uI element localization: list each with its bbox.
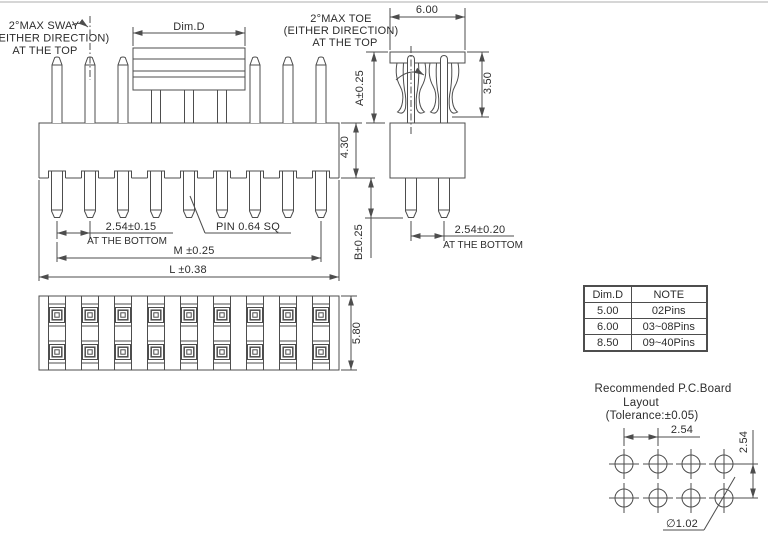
pcb-pitch-x-label: 2.54 [671,424,693,436]
pin-cell [115,296,132,370]
pcb-hole [643,449,673,479]
pcb-hole [709,483,739,513]
pcb-pitch-x-dimension: 2.54 [624,424,700,446]
front-view: 2°MAX SWAY (EITHER DIRECTION) AT THE TOP… [0,16,375,281]
pcb-title-line3: (Tolerance:±0.05) [606,410,699,422]
pin [280,171,297,218]
pin-cell [181,296,198,370]
note-value: 02Pins [631,303,707,319]
side-pitch-label: 2.54±0.20 [455,224,506,236]
pin-cell [49,296,66,370]
cap-width-label: Dim.D [173,21,205,33]
side-pitch-note: AT THE BOTTOM [443,240,523,251]
top-pin-label: A±0.25 [354,70,366,106]
dim-value: 8.50 [584,335,631,352]
dim-table-header-dim: Dim.D [584,286,631,303]
pcb-hole-dia-label: ∅1.02 [666,518,698,530]
pickup-cap [133,48,245,123]
clip-height-label: 3.50 [482,72,494,94]
front-pitch-note: AT THE BOTTOM [87,236,167,247]
front-housing-body [39,123,339,178]
pin-size-callout: PIN 0.64 SQ [190,196,291,233]
side-housing-body [390,123,465,178]
dim-value: 5.00 [584,303,631,319]
pin [406,178,417,218]
pin [283,57,293,123]
pin [82,171,99,218]
dim-table-header-note: NOTE [631,286,707,303]
pin-cell [280,296,297,370]
note-value: 09~40Pins [631,335,707,352]
toe-note-line3: AT THE TOP [312,37,377,49]
pin-cell [82,296,99,370]
sway-note-line3: AT THE TOP [12,45,77,57]
pin [115,171,132,218]
pcb-title-line2: Layout [623,397,659,409]
pin [313,171,330,218]
cap-depth-label: 6.00 [416,4,438,16]
dim-table-header-row: Dim.D NOTE [584,286,707,303]
sway-note-line1: 2°MAX SWAY [9,20,80,32]
front-pitch-label: 2.54±0.15 [106,221,157,233]
pcb-hole [676,449,706,479]
bottom-pin-label: B±0.25 [353,224,365,260]
body-height-label: 4.30 [339,136,351,158]
pcb-hole [676,483,706,513]
pcb-title-line1: Recommended P.C.Board [595,383,732,395]
cap-width-dimension: Dim.D [133,21,245,46]
pcb-pitch-y-label: 2.54 [738,431,750,453]
pin-cell [148,296,165,370]
pin [316,57,326,123]
side-view: 2°MAX TOE (EITHER DIRECTION) AT THE TOP … [284,4,523,260]
pin [439,178,450,218]
dim-table: Dim.D NOTE 5.00 02Pins 6.00 03~08Pins 8.… [583,285,708,352]
body-height-dimension: 4.30 [339,123,375,178]
pin [250,57,260,123]
pin [247,171,264,218]
pin [148,171,165,218]
cap-side [390,52,465,63]
toe-note-line1: 2°MAX TOE [310,13,371,25]
length-label: L ±0.38 [169,264,207,276]
pin-cell [247,296,264,370]
pcb-hole [609,483,639,513]
note-value: 03~08Pins [631,319,707,335]
table-row: 8.50 09~40Pins [584,335,707,352]
table-row: 5.00 02Pins [584,303,707,319]
pin [52,57,62,123]
technical-drawing-page: 2°MAX SWAY (EITHER DIRECTION) AT THE TOP… [0,0,768,536]
pcb-layout: Recommended P.C.Board Layout (Tolerance:… [595,383,758,530]
pin-cell [313,296,330,370]
drawing-canvas: 2°MAX SWAY (EITHER DIRECTION) AT THE TOP… [0,0,768,536]
width-dimension: 5.80 [341,296,363,370]
span-label: M ±0.25 [173,245,214,257]
pin [49,171,66,218]
front-pitch-dimension: 2.54±0.15 AT THE BOTTOM [57,221,173,247]
sway-note-line2: (EITHER DIRECTION) [0,33,109,45]
table-row: 6.00 03~08Pins [584,319,707,335]
width-label: 5.80 [351,322,363,344]
pin [214,171,231,218]
top-pin-dimension: A±0.25 [354,52,388,123]
pcb-hole [643,483,673,513]
cap-depth-dimension: 6.00 [390,4,465,50]
pin [118,57,128,123]
side-pitch-dimension: 2.54±0.20 AT THE BOTTOM [411,221,523,251]
pin-cell [214,296,231,370]
pin-clip [429,56,459,124]
bottom-pin-dimension: B±0.25 [353,178,403,260]
pcb-pitch-y-dimension: 2.54 [737,430,758,498]
dim-value: 6.00 [584,319,631,335]
pin [181,171,198,218]
pcb-hole [609,449,639,479]
toe-note-line2: (EITHER DIRECTION) [284,25,399,37]
front-bottom-pins [49,171,330,218]
top-view: 5.80 [39,296,363,370]
pin-size-label: PIN 0.64 SQ [216,221,280,233]
pcb-hole [709,449,739,479]
